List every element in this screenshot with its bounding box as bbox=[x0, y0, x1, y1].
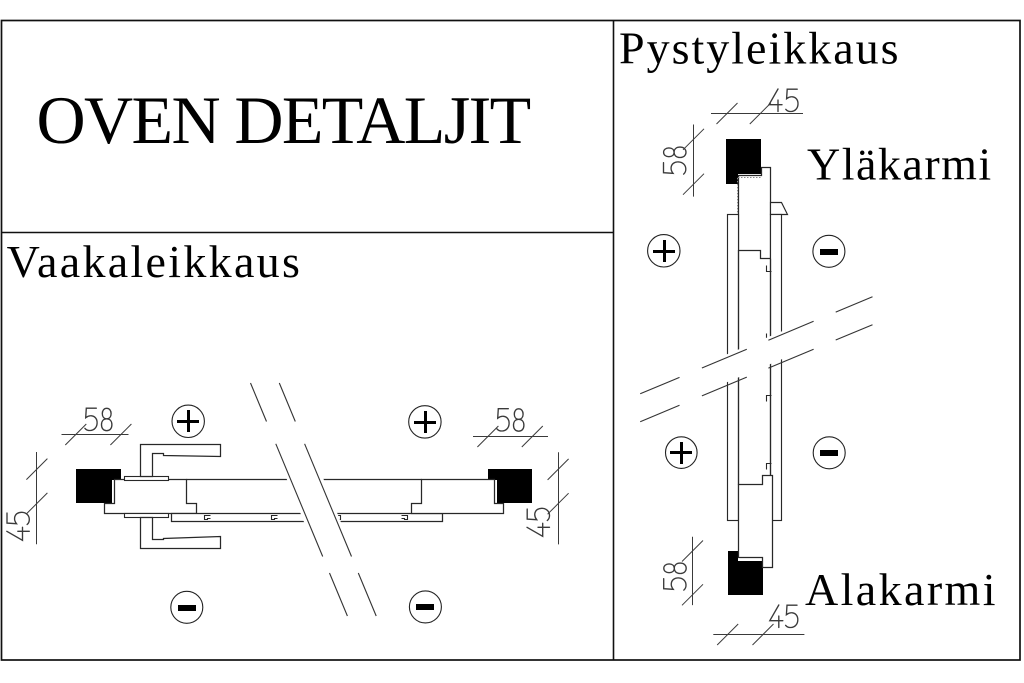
svg-text:Alakarmi: Alakarmi bbox=[805, 564, 998, 615]
svg-text:OVEN DETALJIT: OVEN DETALJIT bbox=[37, 82, 531, 158]
svg-text:Vaakaleikkaus: Vaakaleikkaus bbox=[7, 236, 303, 287]
svg-text:Pystyleikkaus: Pystyleikkaus bbox=[619, 22, 901, 73]
svg-text:Yläkarmi: Yläkarmi bbox=[807, 138, 993, 189]
